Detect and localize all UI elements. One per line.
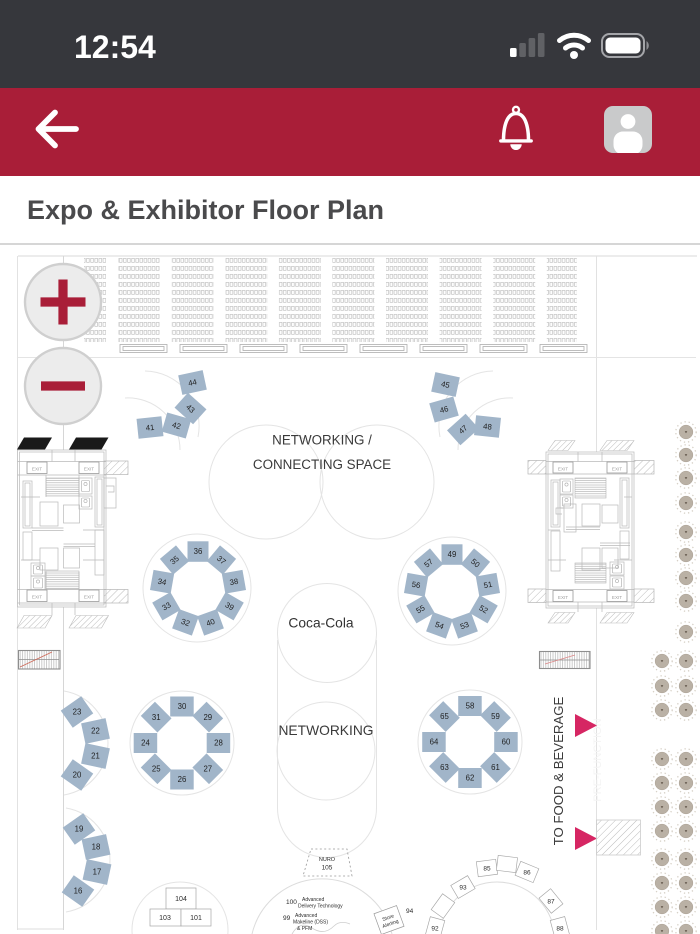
svg-text:38: 38 <box>229 577 239 587</box>
svg-text:21: 21 <box>91 752 100 761</box>
svg-text:26: 26 <box>178 775 187 784</box>
svg-text:EXIT: EXIT <box>558 595 568 600</box>
svg-text:28: 28 <box>214 739 223 748</box>
svg-text:Coca-Cola: Coca-Cola <box>288 616 354 631</box>
svg-text:EXIT: EXIT <box>84 595 94 600</box>
svg-text:20: 20 <box>73 771 82 780</box>
svg-text:41: 41 <box>145 423 155 433</box>
svg-text:30: 30 <box>178 702 187 711</box>
svg-text:49: 49 <box>448 550 457 559</box>
svg-text:EXIT: EXIT <box>612 595 622 600</box>
svg-text:92: 92 <box>431 925 439 932</box>
svg-text:EXIT: EXIT <box>558 466 568 471</box>
svg-text:23: 23 <box>73 708 82 717</box>
svg-text:31: 31 <box>152 713 161 722</box>
svg-text:101: 101 <box>190 915 202 922</box>
svg-text:105: 105 <box>322 865 333 872</box>
svg-text:NURO: NURO <box>319 857 336 863</box>
svg-text:94: 94 <box>406 908 414 915</box>
svg-text:99: 99 <box>283 915 291 922</box>
svg-text:TO FOOD & BEVERAGE: TO FOOD & BEVERAGE <box>551 697 566 846</box>
svg-text:& PFM: & PFM <box>297 926 312 932</box>
svg-text:Delivery Technology: Delivery Technology <box>298 904 343 910</box>
svg-text:61: 61 <box>491 763 500 772</box>
svg-text:CONNECTING SPACE: CONNECTING SPACE <box>253 457 391 472</box>
svg-text:103: 103 <box>159 915 171 922</box>
svg-text:Advanced: Advanced <box>295 913 317 919</box>
svg-text:62: 62 <box>466 774 475 783</box>
svg-text:19: 19 <box>75 825 84 834</box>
svg-text:36: 36 <box>194 547 203 556</box>
svg-text:EXIT: EXIT <box>612 466 622 471</box>
svg-text:29: 29 <box>203 713 212 722</box>
svg-text:18: 18 <box>92 843 101 852</box>
svg-text:88: 88 <box>556 925 564 932</box>
svg-text:NETWORKING: NETWORKING <box>278 723 373 738</box>
svg-text:EXIT: EXIT <box>32 595 42 600</box>
svg-text:85: 85 <box>483 865 491 872</box>
svg-text:22: 22 <box>91 727 100 736</box>
svg-text:87: 87 <box>547 898 555 905</box>
svg-text:59: 59 <box>491 712 500 721</box>
svg-text:17: 17 <box>93 868 102 877</box>
svg-text:51: 51 <box>483 580 493 590</box>
svg-text:EXIT: EXIT <box>32 467 42 472</box>
svg-text:58: 58 <box>466 702 475 711</box>
svg-text:64: 64 <box>430 738 439 747</box>
svg-text:48: 48 <box>483 422 493 432</box>
svg-text:25: 25 <box>152 765 161 774</box>
svg-text:65: 65 <box>440 712 449 721</box>
svg-text:Advanced: Advanced <box>302 897 324 903</box>
svg-text:NETWORKING /: NETWORKING / <box>272 433 372 448</box>
svg-text:56: 56 <box>411 580 421 590</box>
svg-text:63: 63 <box>440 763 449 772</box>
svg-text:104: 104 <box>175 896 187 903</box>
svg-text:16: 16 <box>74 887 83 896</box>
svg-text:93: 93 <box>459 884 467 891</box>
svg-text:27: 27 <box>203 765 212 774</box>
svg-text:EXIT: EXIT <box>84 467 94 472</box>
svg-text:PRE-FUNCTION: PRE-FUNCTION <box>592 718 604 801</box>
svg-text:Makeline (DSS): Makeline (DSS) <box>293 920 328 926</box>
svg-text:24: 24 <box>141 739 150 748</box>
svg-text:86: 86 <box>523 869 531 876</box>
svg-text:60: 60 <box>502 738 511 747</box>
svg-text:100: 100 <box>286 899 297 906</box>
